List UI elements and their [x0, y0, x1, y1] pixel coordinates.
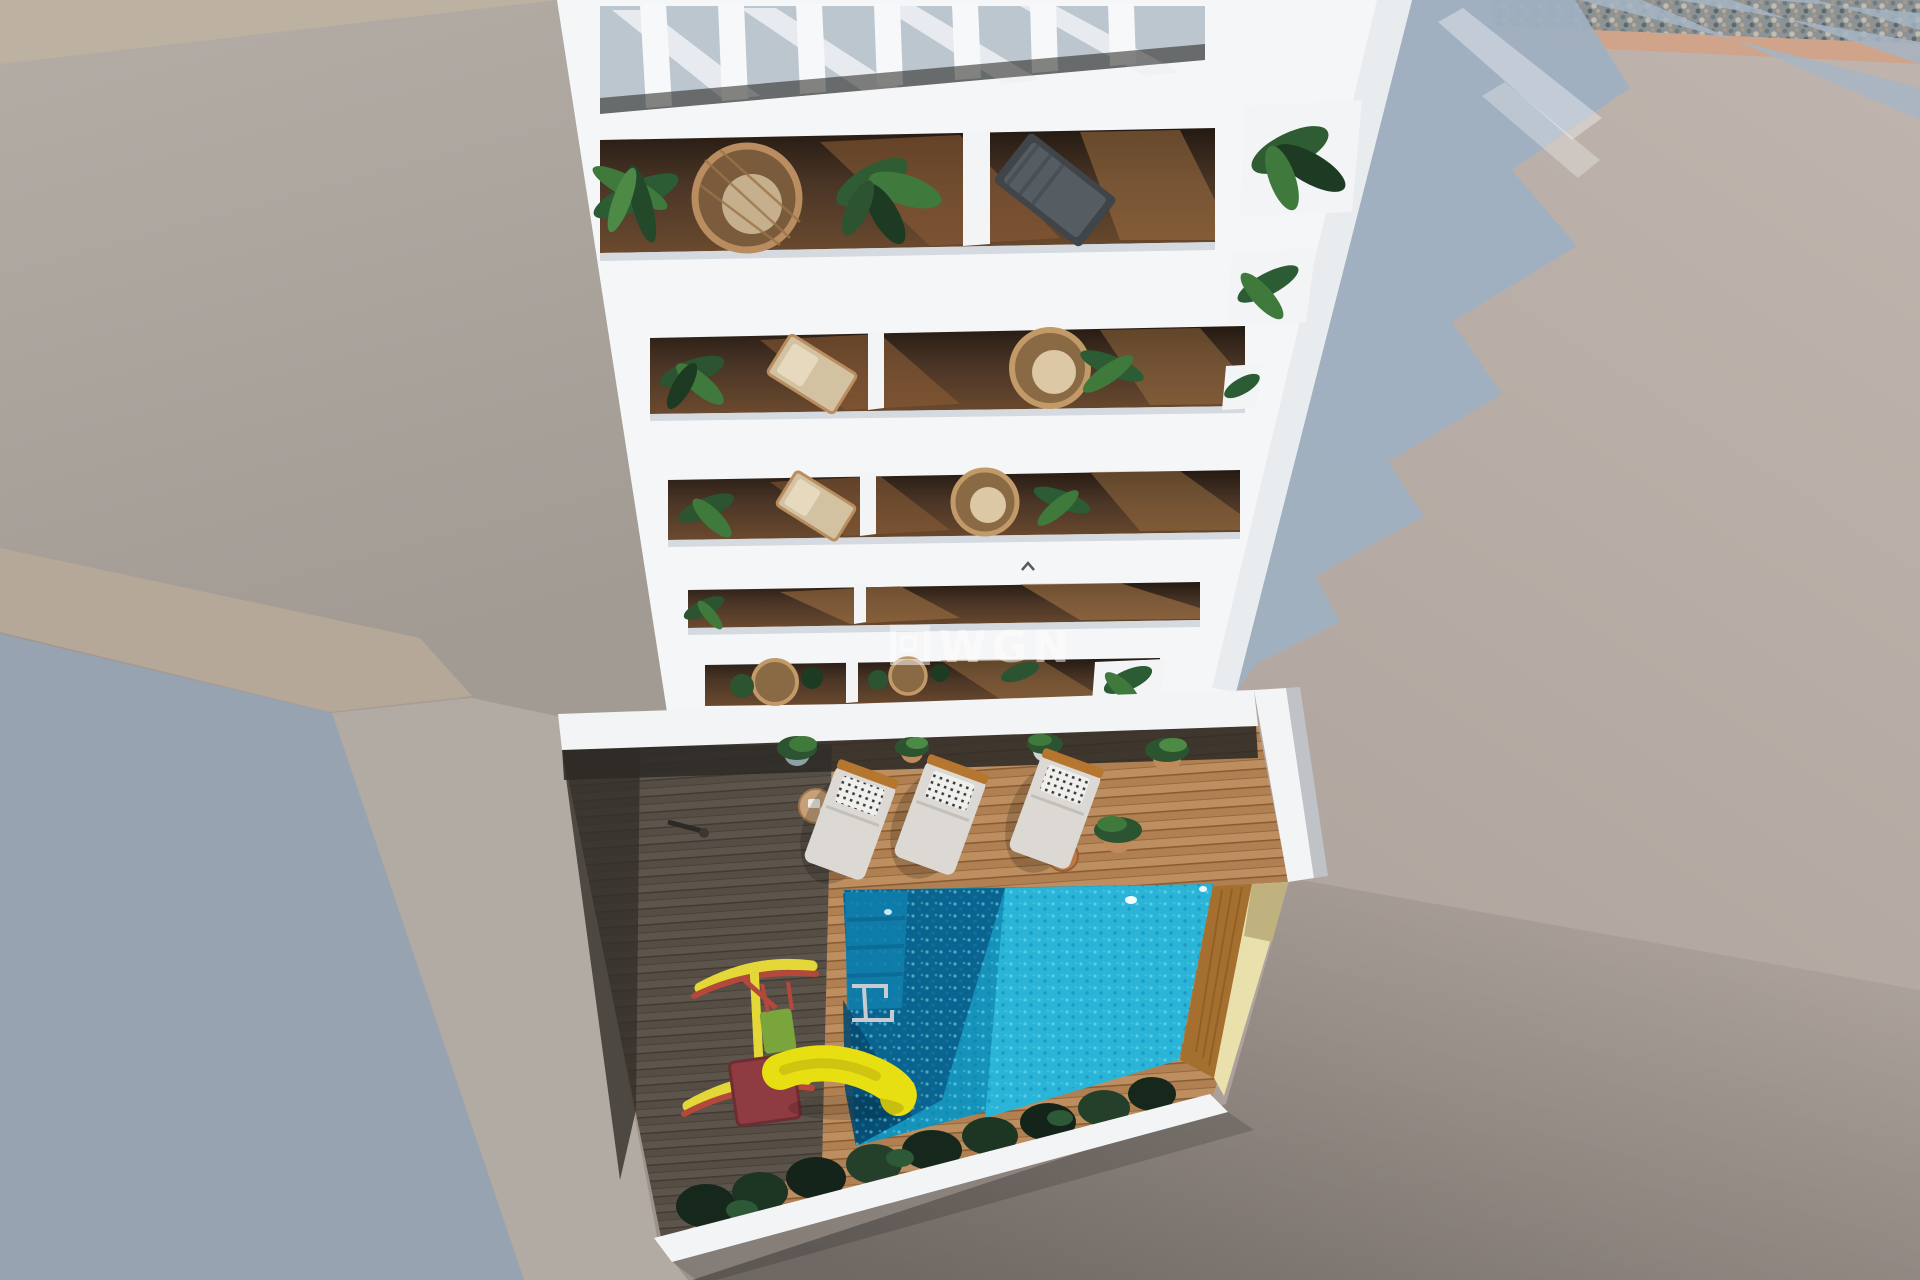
balcony-divider: [854, 584, 866, 624]
water-glint: [884, 909, 892, 915]
pool-steps: [845, 891, 908, 1010]
balcony-divider: [860, 472, 876, 536]
hanging-chair: [1012, 330, 1088, 406]
hanging-chair: [953, 470, 1017, 534]
hanging-chair: [695, 146, 800, 250]
swing-seat: [759, 1008, 797, 1054]
balcony-end-planter: [1240, 100, 1362, 216]
water-glint: [1199, 886, 1207, 892]
balcony-divider: [963, 130, 990, 246]
scene-canvas: WGN: [0, 0, 1920, 1280]
watermark-text: WGN: [938, 622, 1074, 673]
balcony-end-planter: [1226, 248, 1316, 326]
balcony-divider: [868, 330, 884, 410]
balcony-divider: [846, 660, 858, 703]
water-glint: [1125, 896, 1137, 904]
aerial-render: WGN: [0, 0, 1920, 1280]
